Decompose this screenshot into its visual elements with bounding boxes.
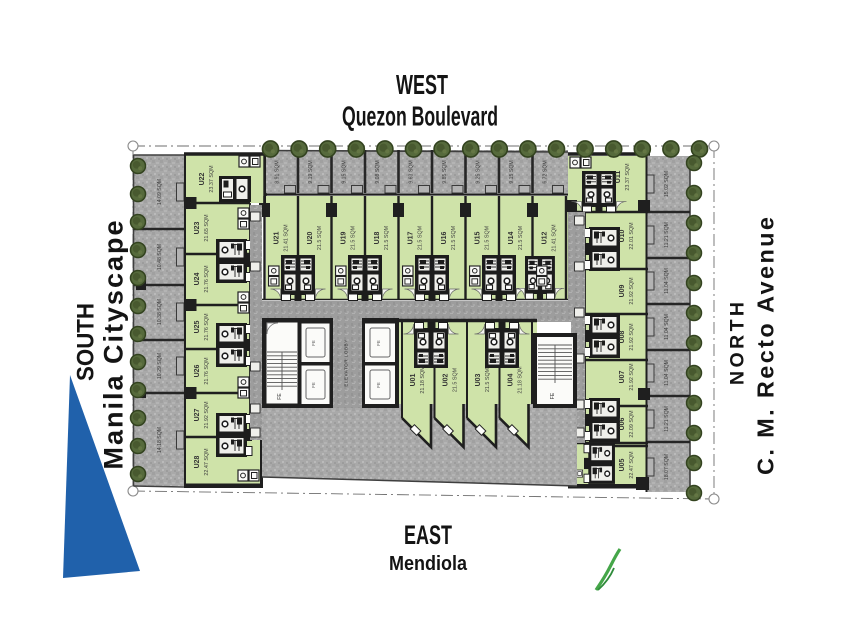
svg-text:U14: U14 — [508, 231, 515, 244]
svg-text:21.18 SQM: 21.18 SQM — [518, 366, 524, 394]
svg-text:21.5 SQM: 21.5 SQM — [453, 367, 459, 392]
svg-text:21.92 SQM: 21.92 SQM — [629, 323, 635, 351]
svg-text:21.92 SQM: 21.92 SQM — [629, 277, 635, 305]
svg-text:21.5 SQM: 21.5 SQM — [518, 225, 524, 250]
svg-text:21.41 SQM: 21.41 SQM — [551, 224, 557, 252]
svg-text:11.04 SQM: 11.04 SQM — [664, 314, 670, 340]
svg-text:U01: U01 — [410, 373, 417, 386]
svg-text:U21: U21 — [273, 231, 280, 244]
svg-text:U06: U06 — [619, 417, 626, 430]
svg-text:21.5 SQM: 21.5 SQM — [485, 367, 491, 392]
svg-text:U04: U04 — [508, 373, 515, 386]
svg-text:22.01 SQM: 22.01 SQM — [629, 222, 635, 250]
svg-text:21.5 SQM: 21.5 SQM — [484, 225, 490, 250]
svg-text:Manila Cityscape: Manila Cityscape — [99, 221, 129, 470]
svg-text:11.04 SQM: 11.04 SQM — [664, 268, 670, 294]
svg-text:6.72 SQM: 6.72 SQM — [543, 160, 549, 183]
svg-text:14.09 SQM: 14.09 SQM — [157, 179, 163, 205]
svg-text:21.5 SQM: 21.5 SQM — [417, 225, 423, 250]
svg-text:FE: FE — [376, 382, 381, 388]
svg-text:11.21 SQM: 11.21 SQM — [664, 406, 670, 432]
svg-text:U03: U03 — [475, 373, 482, 386]
svg-text:9.15 SQM: 9.15 SQM — [342, 160, 348, 183]
svg-text:U08: U08 — [619, 330, 626, 343]
svg-text:10.48 SQM: 10.48 SQM — [157, 244, 163, 270]
svg-text:9.08 SQM: 9.08 SQM — [375, 160, 381, 183]
svg-text:21.5 SQM: 21.5 SQM — [384, 225, 390, 250]
svg-text:10.38 SQM: 10.38 SQM — [157, 299, 163, 325]
svg-text:NORTH: NORTH — [727, 302, 749, 385]
svg-text:10.29 SQM: 10.29 SQM — [157, 353, 163, 379]
svg-text:U25: U25 — [194, 320, 201, 333]
svg-text:FE: FE — [311, 382, 316, 388]
svg-text:C. M. Recto Avenue: C. M. Recto Avenue — [753, 217, 779, 475]
svg-text:U27: U27 — [194, 408, 201, 421]
svg-text:21.41 SQM: 21.41 SQM — [283, 224, 289, 252]
svg-text:22.47 SQM: 22.47 SQM — [204, 448, 210, 476]
svg-text:U22: U22 — [199, 172, 206, 185]
svg-text:U20: U20 — [307, 231, 314, 244]
svg-text:EAST: EAST — [404, 520, 452, 550]
svg-text:U24: U24 — [194, 272, 201, 285]
svg-text:Quezon Boulevard: Quezon Boulevard — [342, 101, 498, 132]
svg-text:U26: U26 — [194, 364, 201, 377]
svg-text:U07: U07 — [619, 370, 626, 383]
svg-text:9.63 SQM: 9.63 SQM — [409, 160, 415, 183]
svg-text:21.92 SQM: 21.92 SQM — [629, 363, 635, 391]
svg-text:Mendiola: Mendiola — [389, 552, 468, 575]
svg-text:U17: U17 — [407, 231, 414, 244]
svg-text:11.04 SQM: 11.04 SQM — [664, 360, 670, 386]
svg-text:21.5 SQM: 21.5 SQM — [350, 225, 356, 250]
svg-text:FE: FE — [277, 393, 283, 400]
svg-text:U15: U15 — [474, 231, 481, 244]
svg-text:U16: U16 — [441, 231, 448, 244]
svg-text:9.15 SQM: 9.15 SQM — [509, 160, 515, 183]
svg-text:23.37 SQM: 23.37 SQM — [625, 163, 631, 191]
svg-text:21.76 SQM: 21.76 SQM — [204, 313, 210, 341]
svg-text:21.18 SQM: 21.18 SQM — [420, 366, 426, 394]
svg-text:21.76 SQM: 21.76 SQM — [204, 357, 210, 385]
svg-text:FE: FE — [376, 340, 381, 346]
svg-text:ELEVATOR LOBBY: ELEVATOR LOBBY — [344, 339, 349, 386]
svg-text:18.07 SQM: 18.07 SQM — [664, 454, 670, 480]
svg-text:U12: U12 — [541, 231, 548, 244]
svg-text:U10: U10 — [619, 229, 626, 242]
svg-text:21.92 SQM: 21.92 SQM — [204, 401, 210, 429]
svg-text:U28: U28 — [194, 455, 201, 468]
svg-text:U09: U09 — [619, 284, 626, 297]
svg-text:23.37 SQM: 23.37 SQM — [209, 165, 215, 193]
svg-text:U11: U11 — [615, 171, 622, 184]
svg-text:SOUTH: SOUTH — [73, 303, 100, 381]
svg-text:21.5 SQM: 21.5 SQM — [451, 225, 457, 250]
svg-text:WEST: WEST — [396, 69, 448, 100]
svg-text:U05: U05 — [619, 458, 626, 471]
svg-text:U19: U19 — [340, 231, 347, 244]
svg-text:U23: U23 — [194, 221, 201, 234]
svg-text:22.47 SQM: 22.47 SQM — [629, 451, 635, 479]
svg-text:11.21 SQM: 11.21 SQM — [664, 222, 670, 248]
svg-text:21.5 SQM: 21.5 SQM — [317, 225, 323, 250]
svg-text:21.65 SQM: 21.65 SQM — [204, 214, 210, 242]
svg-text:U18: U18 — [374, 231, 381, 244]
svg-text:22.09 SQM: 22.09 SQM — [629, 410, 635, 438]
svg-text:U02: U02 — [443, 373, 450, 386]
svg-text:FE: FE — [550, 392, 556, 399]
svg-text:14.18 SQM: 14.18 SQM — [157, 427, 163, 453]
svg-text:9.19 SQM: 9.19 SQM — [308, 160, 314, 183]
svg-text:21.76 SQM: 21.76 SQM — [204, 265, 210, 293]
svg-text:8.91 SQM: 8.91 SQM — [275, 160, 281, 183]
svg-text:15.02 SQM: 15.02 SQM — [664, 171, 670, 197]
svg-text:9.85 SQM: 9.85 SQM — [442, 160, 448, 183]
svg-text:9.25 SQM: 9.25 SQM — [476, 160, 482, 183]
svg-text:FE: FE — [311, 340, 316, 346]
